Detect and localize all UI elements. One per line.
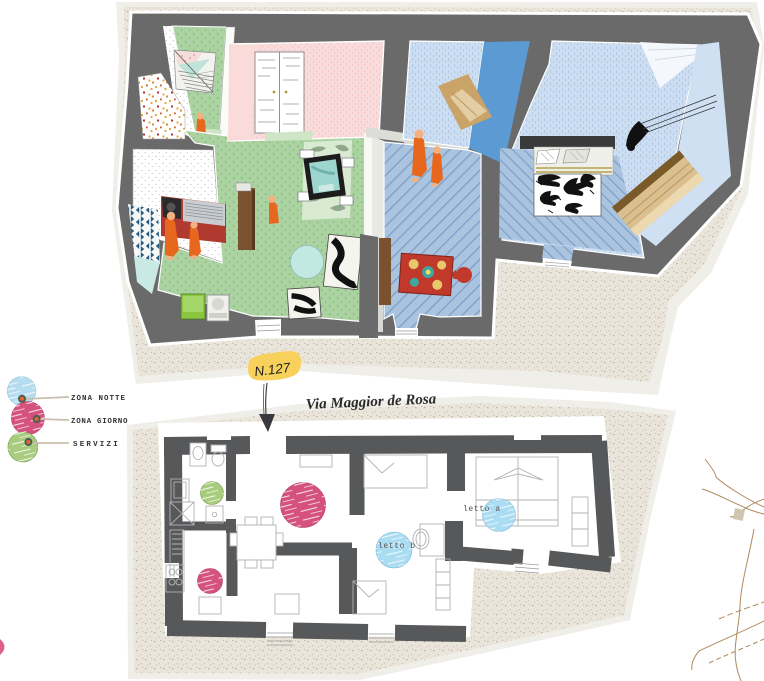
svg-text:ZONA GIORNO: ZONA GIORNO [71,418,128,426]
svg-text:letto a: letto a [463,505,501,514]
svg-text:SERVIZI: SERVIZI [73,441,120,449]
svg-text:ZONA NOTTE: ZONA NOTTE [71,395,126,403]
svg-text:letto b: letto b [378,542,416,551]
